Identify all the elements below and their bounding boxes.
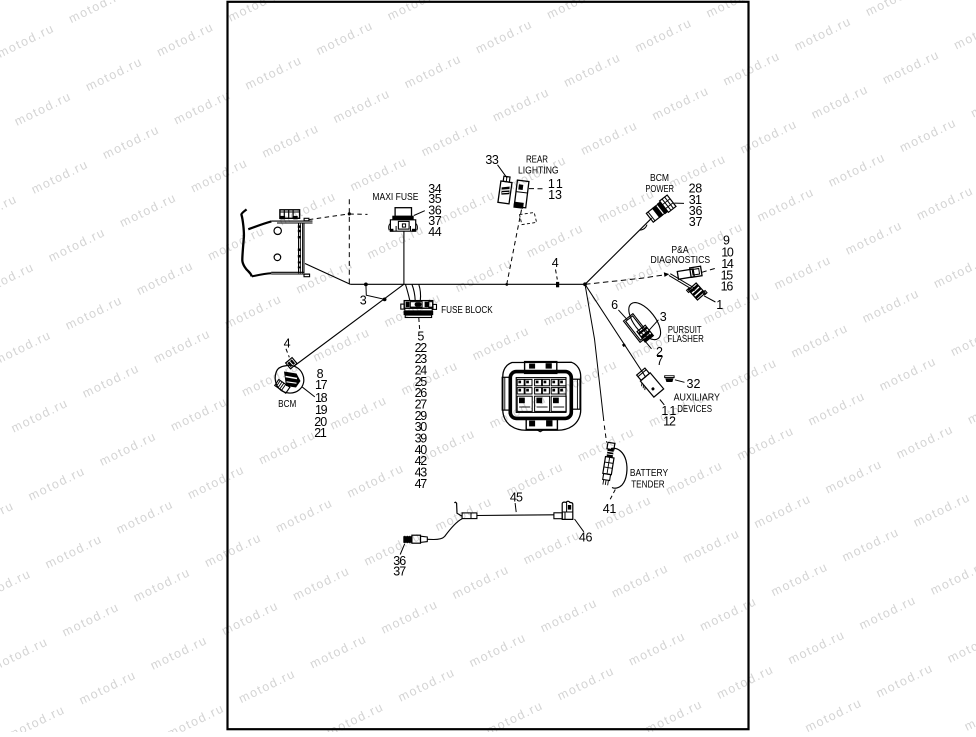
svg-text:motod.ru: motod.ru — [6, 702, 68, 732]
svg-text:MAXI FUSE: MAXI FUSE — [372, 192, 418, 203]
svg-text:17: 17 — [315, 378, 328, 392]
svg-text:motod.ru: motod.ru — [562, 50, 624, 90]
svg-text:motod.ru: motod.ru — [274, 496, 336, 536]
svg-text:motod.ru: motod.ru — [786, 627, 848, 667]
svg-text:motod.ru: motod.ru — [521, 528, 583, 568]
svg-text:motod.ru: motod.ru — [219, 598, 281, 638]
svg-text:motod.ru: motod.ru — [46, 225, 108, 265]
svg-text:motod.ru: motod.ru — [715, 662, 777, 702]
svg-text:32: 32 — [687, 377, 701, 391]
svg-text:motod.ru: motod.ru — [826, 150, 888, 190]
svg-text:16: 16 — [721, 279, 734, 293]
svg-text:motod.ru: motod.ru — [0, 124, 3, 164]
svg-text:motod.ru: motod.ru — [172, 88, 234, 128]
svg-text:45: 45 — [510, 491, 523, 505]
svg-text:motod.ru: motod.ru — [9, 396, 71, 436]
svg-text:motod.ru: motod.ru — [880, 47, 942, 87]
svg-text:motod.ru: motod.ru — [931, 251, 976, 291]
svg-text:motod.ru: motod.ru — [681, 526, 743, 566]
svg-text:motod.ru: motod.ru — [114, 497, 176, 537]
svg-text:motod.ru: motod.ru — [755, 185, 817, 225]
svg-text:motod.ru: motod.ru — [860, 286, 922, 326]
svg-text:motod.ru: motod.ru — [809, 82, 871, 122]
svg-text:motod.ru: motod.ru — [0, 328, 54, 368]
svg-text:DIAGNOSTICS: DIAGNOSTICS — [651, 255, 711, 266]
svg-text:motod.ru: motod.ru — [314, 18, 376, 58]
svg-text:motod.ru: motod.ru — [555, 664, 617, 704]
svg-text:motod.ru: motod.ru — [470, 324, 532, 364]
svg-text:motod.ru: motod.ru — [928, 558, 976, 598]
svg-text:motod.ru: motod.ru — [945, 626, 976, 666]
svg-text:motod.ru: motod.ru — [664, 458, 726, 498]
svg-text:motod.ru: motod.ru — [575, 425, 637, 465]
svg-text:motod.ru: motod.ru — [0, 21, 57, 61]
svg-text:motod.ru: motod.ru — [399, 358, 461, 398]
svg-text:motod.ru: motod.ru — [189, 156, 251, 196]
svg-text:REAR: REAR — [526, 155, 548, 166]
svg-text:motod.ru: motod.ru — [396, 665, 458, 705]
svg-text:motod.ru: motod.ru — [484, 698, 546, 732]
svg-text:motod.ru: motod.ru — [752, 491, 814, 531]
svg-text:motod.ru: motod.ru — [419, 120, 481, 160]
svg-text:motod.ru: motod.ru — [769, 559, 831, 599]
svg-text:12: 12 — [663, 415, 676, 429]
svg-text:motod.ru: motod.ru — [738, 117, 800, 157]
svg-text:3: 3 — [360, 294, 367, 308]
svg-text:motod.ru: motod.ru — [579, 118, 641, 158]
svg-text:motod.ru: motod.ru — [633, 15, 695, 55]
svg-text:motod.ru: motod.ru — [12, 89, 74, 129]
svg-text:motod.ru: motod.ru — [66, 0, 128, 26]
svg-text:FUSE BLOCK: FUSE BLOCK — [441, 305, 493, 316]
svg-text:motod.ru: motod.ru — [402, 52, 464, 92]
svg-text:motod.ru: motod.ru — [467, 630, 529, 670]
svg-text:motod.ru: motod.ru — [490, 85, 552, 125]
svg-text:motod.ru: motod.ru — [226, 0, 288, 25]
svg-text:DEVICES: DEVICES — [677, 404, 712, 415]
svg-text:motod.ru: motod.ru — [772, 253, 834, 293]
svg-text:21: 21 — [314, 426, 327, 440]
svg-text:motod.ru: motod.ru — [168, 394, 230, 434]
svg-text:33: 33 — [485, 153, 498, 167]
svg-text:1: 1 — [716, 298, 723, 312]
svg-text:motod.ru: motod.ru — [148, 633, 210, 673]
svg-text:13: 13 — [548, 188, 562, 202]
svg-text:motod.ru: motod.ru — [80, 361, 142, 401]
svg-text:motod.ru: motod.ru — [0, 498, 16, 538]
svg-text:motod.ru: motod.ru — [894, 422, 956, 462]
svg-text:motod.ru: motod.ru — [223, 292, 285, 332]
svg-text:motod.ru: motod.ru — [436, 188, 498, 228]
svg-text:LIGHTING: LIGHTING — [518, 165, 559, 176]
svg-text:motod.ru: motod.ru — [897, 115, 959, 155]
svg-text:41: 41 — [603, 502, 617, 516]
svg-text:motod.ru: motod.ru — [453, 256, 515, 296]
svg-text:motod.ru: motod.ru — [857, 593, 919, 633]
svg-text:motod.ru: motod.ru — [185, 462, 247, 502]
svg-text:motod.ru: motod.ru — [0, 192, 20, 232]
svg-text:37: 37 — [689, 215, 703, 229]
svg-text:motod.ru: motod.ru — [348, 154, 410, 194]
svg-text:motod.ru: motod.ru — [331, 86, 393, 126]
svg-text:motod.ru: motod.ru — [450, 562, 512, 602]
svg-text:6: 6 — [611, 298, 618, 312]
svg-text:motod.ru: motod.ru — [60, 600, 122, 640]
svg-text:motod.ru: motod.ru — [545, 0, 607, 22]
svg-text:motod.ru: motod.ru — [382, 290, 444, 330]
svg-text:motod.ru: motod.ru — [965, 387, 976, 427]
svg-text:motod.ru: motod.ru — [155, 20, 217, 60]
svg-text:motod.ru: motod.ru — [77, 668, 139, 708]
svg-text:motod.ru: motod.ru — [165, 701, 227, 732]
svg-text:motod.ru: motod.ru — [806, 389, 868, 429]
svg-text:motod.ru: motod.ru — [151, 326, 213, 366]
svg-text:4: 4 — [284, 337, 291, 351]
svg-text:BATTERY: BATTERY — [630, 468, 668, 479]
svg-text:motod.ru: motod.ru — [385, 0, 447, 23]
svg-text:motod.ru: motod.ru — [626, 629, 688, 669]
svg-text:7: 7 — [656, 354, 663, 368]
svg-text:motod.ru: motod.ru — [308, 632, 370, 672]
svg-text:motod.ru: motod.ru — [609, 561, 671, 601]
svg-text:44: 44 — [428, 225, 441, 239]
svg-text:BCM: BCM — [278, 399, 296, 410]
svg-text:BCM: BCM — [650, 173, 669, 184]
svg-text:motod.ru: motod.ru — [0, 566, 33, 606]
svg-text:motod.ru: motod.ru — [202, 530, 264, 570]
svg-text:motod.ru: motod.ru — [823, 457, 885, 497]
svg-text:47: 47 — [415, 477, 428, 491]
svg-text:motod.ru: motod.ru — [592, 493, 654, 533]
svg-text:motod.ru: motod.ru — [83, 54, 145, 94]
svg-text:motod.ru: motod.ru — [704, 0, 766, 20]
svg-text:motod.ru: motod.ru — [874, 661, 936, 701]
svg-text:motod.ru: motod.ru — [433, 494, 495, 534]
svg-text:motod.ru: motod.ru — [863, 0, 925, 19]
svg-text:motod.ru: motod.ru — [914, 183, 976, 223]
svg-text:POWER: POWER — [645, 184, 674, 195]
svg-text:37: 37 — [393, 565, 406, 579]
svg-text:motod.ru: motod.ru — [97, 429, 159, 469]
svg-text:motod.ru: motod.ru — [100, 122, 162, 162]
svg-text:motod.ru: motod.ru — [877, 354, 939, 394]
svg-text:motod.ru: motod.ru — [43, 532, 105, 572]
svg-text:motod.ru: motod.ru — [236, 666, 298, 706]
svg-text:46: 46 — [579, 531, 593, 545]
svg-text:motod.ru: motod.ru — [26, 464, 88, 504]
svg-text:motod.ru: motod.ru — [473, 17, 535, 57]
svg-text:motod.ru: motod.ru — [0, 634, 50, 674]
svg-text:motod.ru: motod.ru — [650, 83, 712, 123]
svg-text:motod.ru: motod.ru — [117, 190, 179, 230]
svg-text:motod.ru: motod.ru — [345, 461, 407, 501]
svg-text:motod.ru: motod.ru — [792, 14, 854, 54]
svg-text:motod.ru: motod.ru — [698, 594, 760, 634]
svg-text:motod.ru: motod.ru — [257, 428, 319, 468]
svg-text:motod.ru: motod.ru — [541, 289, 603, 329]
svg-text:motod.ru: motod.ru — [243, 53, 305, 93]
svg-text:4: 4 — [552, 256, 559, 270]
svg-text:motod.ru: motod.ru — [379, 597, 441, 637]
svg-text:motod.ru: motod.ru — [911, 490, 973, 530]
svg-text:motod.ru: motod.ru — [843, 218, 905, 258]
svg-text:motod.ru: motod.ru — [328, 393, 390, 433]
svg-text:motod.ru: motod.ru — [260, 121, 322, 161]
svg-text:motod.ru: motod.ru — [0, 260, 37, 300]
svg-text:motod.ru: motod.ru — [803, 695, 865, 732]
svg-text:motod.ru: motod.ru — [206, 224, 268, 264]
svg-text:motod.ru: motod.ru — [29, 157, 91, 197]
svg-text:motod.ru: motod.ru — [291, 564, 353, 604]
svg-text:motod.ru: motod.ru — [524, 221, 586, 261]
svg-text:motod.ru: motod.ru — [721, 49, 783, 89]
svg-text:motod.ru: motod.ru — [840, 525, 902, 565]
svg-text:motod.ru: motod.ru — [643, 697, 705, 732]
svg-text:motod.ru: motod.ru — [735, 423, 797, 463]
svg-text:AUXILIARY: AUXILIARY — [674, 392, 721, 403]
svg-text:motod.ru: motod.ru — [63, 293, 125, 333]
svg-text:FLASHER: FLASHER — [667, 334, 704, 345]
svg-text:motod.ru: motod.ru — [969, 81, 976, 121]
svg-text:3: 3 — [660, 310, 667, 324]
svg-text:motod.ru: motod.ru — [325, 700, 387, 732]
svg-text:motod.ru: motod.ru — [948, 319, 976, 359]
svg-text:motod.ru: motod.ru — [538, 596, 600, 636]
svg-text:TENDER: TENDER — [631, 479, 665, 490]
svg-text:motod.ru: motod.ru — [962, 694, 976, 732]
svg-text:motod.ru: motod.ru — [131, 565, 193, 605]
svg-text:motod.ru: motod.ru — [134, 258, 196, 298]
svg-text:motod.ru: motod.ru — [789, 321, 851, 361]
svg-text:motod.ru: motod.ru — [952, 13, 976, 53]
